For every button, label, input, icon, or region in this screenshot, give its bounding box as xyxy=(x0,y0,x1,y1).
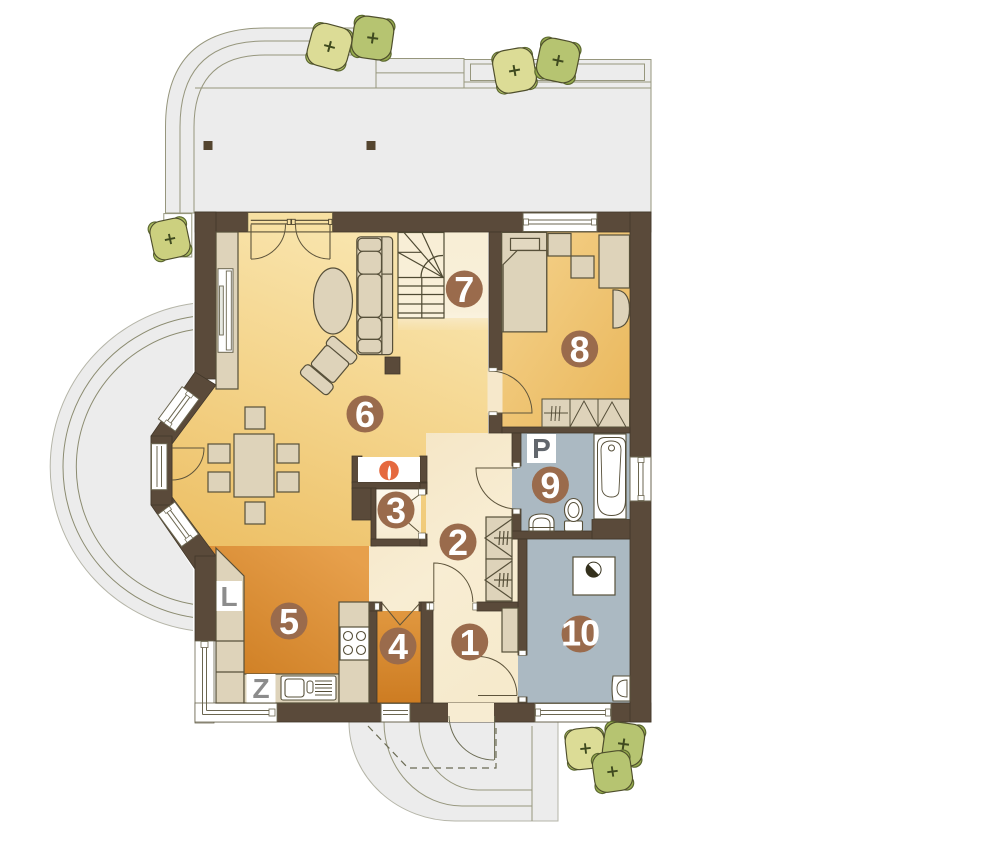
svg-text:L: L xyxy=(220,581,237,612)
svg-text:2: 2 xyxy=(448,522,468,563)
svg-text:1: 1 xyxy=(460,622,480,663)
svg-text:Z: Z xyxy=(252,673,269,704)
svg-text:4: 4 xyxy=(388,626,408,667)
svg-text:7: 7 xyxy=(454,269,474,310)
svg-text:9: 9 xyxy=(540,465,560,506)
svg-text:3: 3 xyxy=(386,490,406,531)
svg-text:P: P xyxy=(532,433,551,464)
svg-text:6: 6 xyxy=(355,394,375,435)
svg-text:10: 10 xyxy=(561,613,599,654)
svg-text:5: 5 xyxy=(279,601,299,642)
svg-text:8: 8 xyxy=(570,329,590,370)
